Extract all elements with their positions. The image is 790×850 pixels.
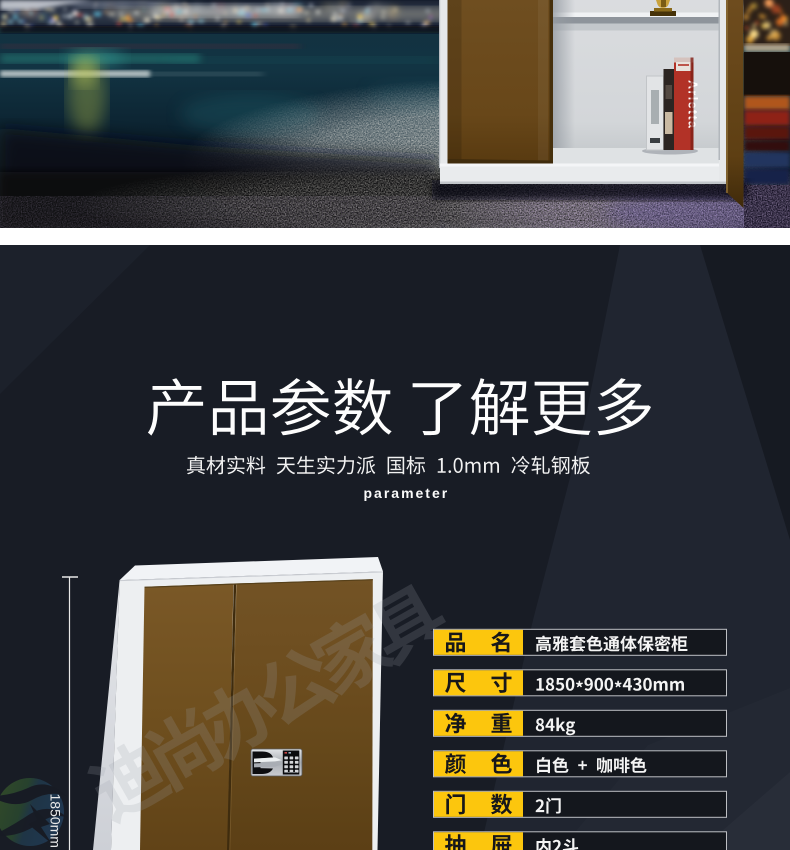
svg-text:1850mm: 1850mm (48, 794, 64, 848)
svg-text:parameter: parameter (364, 485, 450, 501)
